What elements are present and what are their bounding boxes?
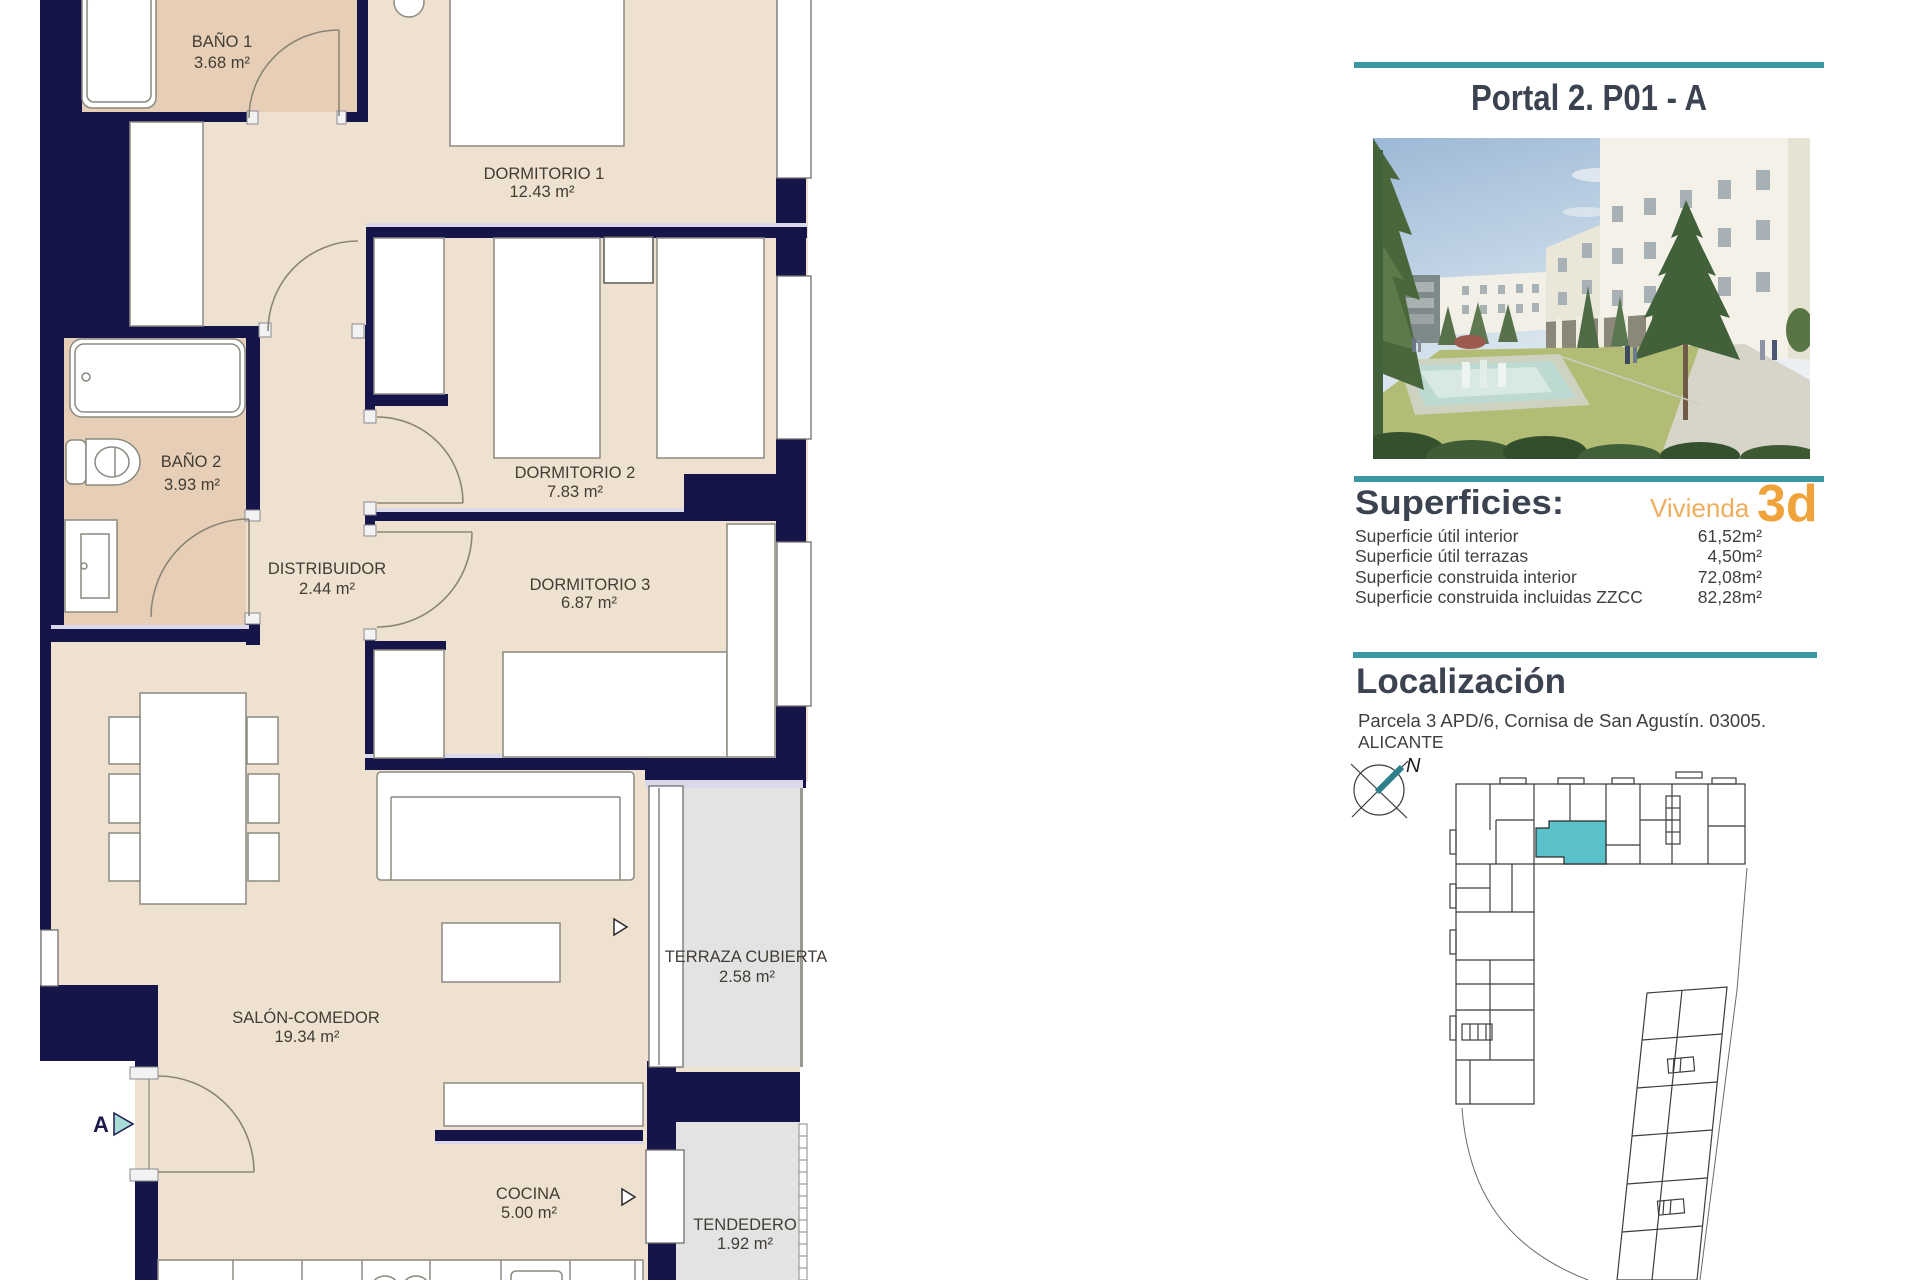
svg-text:TERRAZA CUBIERTA: TERRAZA CUBIERTA [665, 948, 828, 966]
svg-text:TENDEDERO: TENDEDERO [693, 1216, 797, 1234]
svg-text:Localización: Localización [1356, 662, 1566, 701]
svg-text:DORMITORIO 2: DORMITORIO 2 [515, 464, 636, 482]
svg-text:5.00 m²: 5.00 m² [501, 1204, 557, 1222]
svg-text:1.92 m²: 1.92 m² [717, 1235, 773, 1253]
svg-text:Parcela 3 APD/6, Cornisa de Sa: Parcela 3 APD/6, Cornisa de San Agustín.… [1358, 711, 1766, 731]
svg-text:3.68 m²: 3.68 m² [194, 54, 250, 72]
svg-text:61,52m²: 61,52m² [1698, 526, 1762, 546]
svg-text:DISTRIBUIDOR: DISTRIBUIDOR [268, 560, 386, 578]
svg-text:82,28m²: 82,28m² [1698, 587, 1762, 607]
svg-text:ALICANTE: ALICANTE [1358, 732, 1444, 752]
svg-text:DORMITORIO 1: DORMITORIO 1 [484, 165, 605, 183]
svg-text:DORMITORIO 3: DORMITORIO 3 [530, 576, 651, 594]
svg-text:Superficie construida interior: Superficie construida interior [1355, 567, 1577, 587]
svg-text:12.43 m²: 12.43 m² [509, 183, 575, 201]
svg-text:Superficie útil terrazas: Superficie útil terrazas [1355, 546, 1528, 566]
svg-text:4,50m²: 4,50m² [1708, 546, 1763, 566]
svg-text:3d: 3d [1757, 475, 1818, 533]
svg-text:A: A [93, 1112, 109, 1137]
svg-text:3.93 m²: 3.93 m² [164, 476, 220, 494]
svg-text:BAÑO 2: BAÑO 2 [161, 451, 222, 471]
svg-text:7.83 m²: 7.83 m² [547, 483, 603, 501]
svg-text:19.34 m²: 19.34 m² [274, 1028, 340, 1046]
svg-text:Superficie útil interior: Superficie útil interior [1355, 526, 1519, 546]
svg-text:Superficies:: Superficies: [1355, 484, 1564, 522]
svg-text:Portal 2. P01 - A: Portal 2. P01 - A [1471, 77, 1707, 118]
svg-text:72,08m²: 72,08m² [1698, 567, 1762, 587]
svg-text:6.87 m²: 6.87 m² [561, 594, 617, 612]
svg-text:SALÓN-COMEDOR: SALÓN-COMEDOR [232, 1008, 380, 1027]
svg-text:BAÑO 1: BAÑO 1 [192, 31, 253, 51]
svg-text:Superficie construida incluida: Superficie construida incluidas ZZCC [1355, 587, 1643, 607]
svg-text:N: N [1406, 755, 1421, 777]
svg-text:2.44 m²: 2.44 m² [299, 580, 355, 598]
svg-text:2.58 m²: 2.58 m² [719, 968, 775, 986]
svg-text:Vivienda: Vivienda [1650, 493, 1750, 523]
svg-text:COCINA: COCINA [496, 1185, 560, 1203]
